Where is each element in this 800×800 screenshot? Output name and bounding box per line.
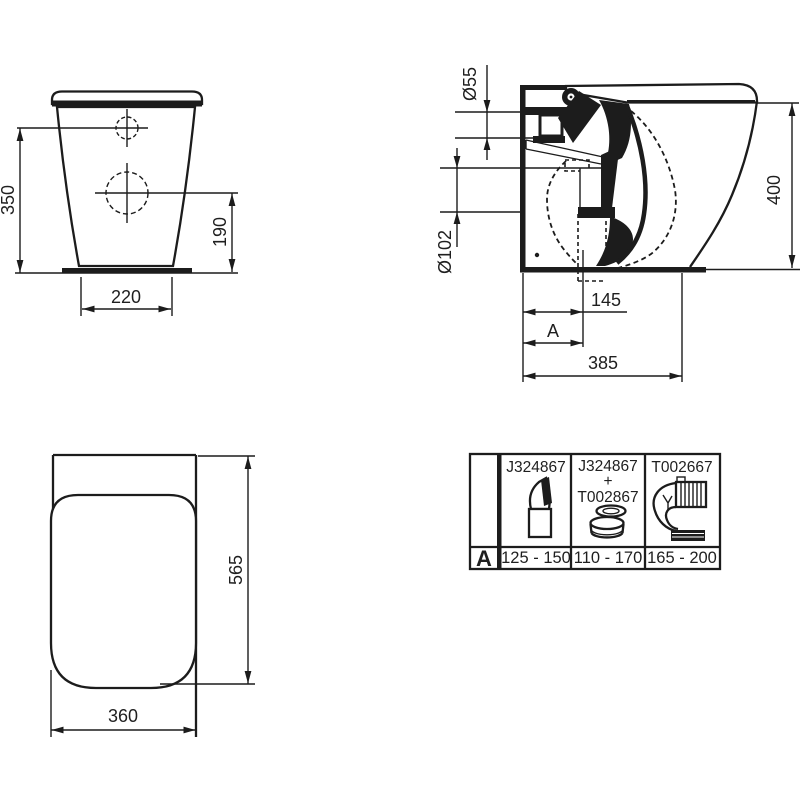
seat-edge-band: [52, 101, 202, 107]
dim-a-label: A: [547, 321, 559, 341]
range-2: 110 - 170: [574, 549, 643, 567]
seat-plan-outline: [51, 495, 196, 688]
flexible-elbow-connector-icon: [654, 477, 706, 541]
technical-drawing-sheet: 350 190 220: [0, 0, 800, 800]
front-view: 350 190 220: [0, 92, 238, 317]
dim-400-label: 400: [764, 175, 784, 205]
dim-190-label: 190: [210, 217, 230, 247]
dim-360-label: 360: [108, 706, 138, 726]
dim-350-label: 350: [0, 185, 18, 215]
table-col-3: T002667 165 - 200: [647, 459, 717, 567]
angled-outlet-connector-icon: [529, 477, 552, 537]
fixing-hole-dot: [535, 253, 539, 257]
side-view: Ø55 Ø102 400 145 A: [435, 65, 800, 382]
table-row-label: A: [476, 546, 492, 571]
floor-line: [520, 267, 706, 273]
adapter-table: A J324867 125 - 150 J324867 + T002867: [470, 454, 720, 571]
top-fixing-bar: [522, 85, 570, 90]
dim-385-label: 385: [588, 353, 618, 373]
table-col-2: J324867 + T002867 110 - 170: [574, 458, 643, 567]
dim-220-group: 220: [81, 277, 172, 316]
plan-view: 565 360: [51, 455, 255, 737]
part-number-3: T002667: [651, 459, 712, 476]
table-col-1: J324867 125 - 150: [501, 459, 571, 567]
range-3: 165 - 200: [647, 549, 717, 567]
dim-400-group: 400: [757, 103, 799, 268]
dim-565-label: 565: [226, 555, 246, 585]
range-1: 125 - 150: [501, 549, 571, 567]
dim-145-label: 145: [591, 290, 621, 310]
wc-dimension-drawing: 350 190 220: [0, 0, 800, 800]
pan-body-outline: [57, 107, 195, 266]
offset-seal-connector-icon: [591, 506, 626, 538]
dim-o102-label: Ø102: [435, 230, 455, 274]
part-number-2-plus: +: [603, 473, 612, 490]
base-plinth: [62, 268, 192, 274]
part-number-2b: T002867: [577, 489, 638, 506]
dim-220-label: 220: [111, 287, 141, 307]
part-number-1: J324867: [506, 459, 565, 476]
dim-o55-label: Ø55: [460, 67, 480, 101]
